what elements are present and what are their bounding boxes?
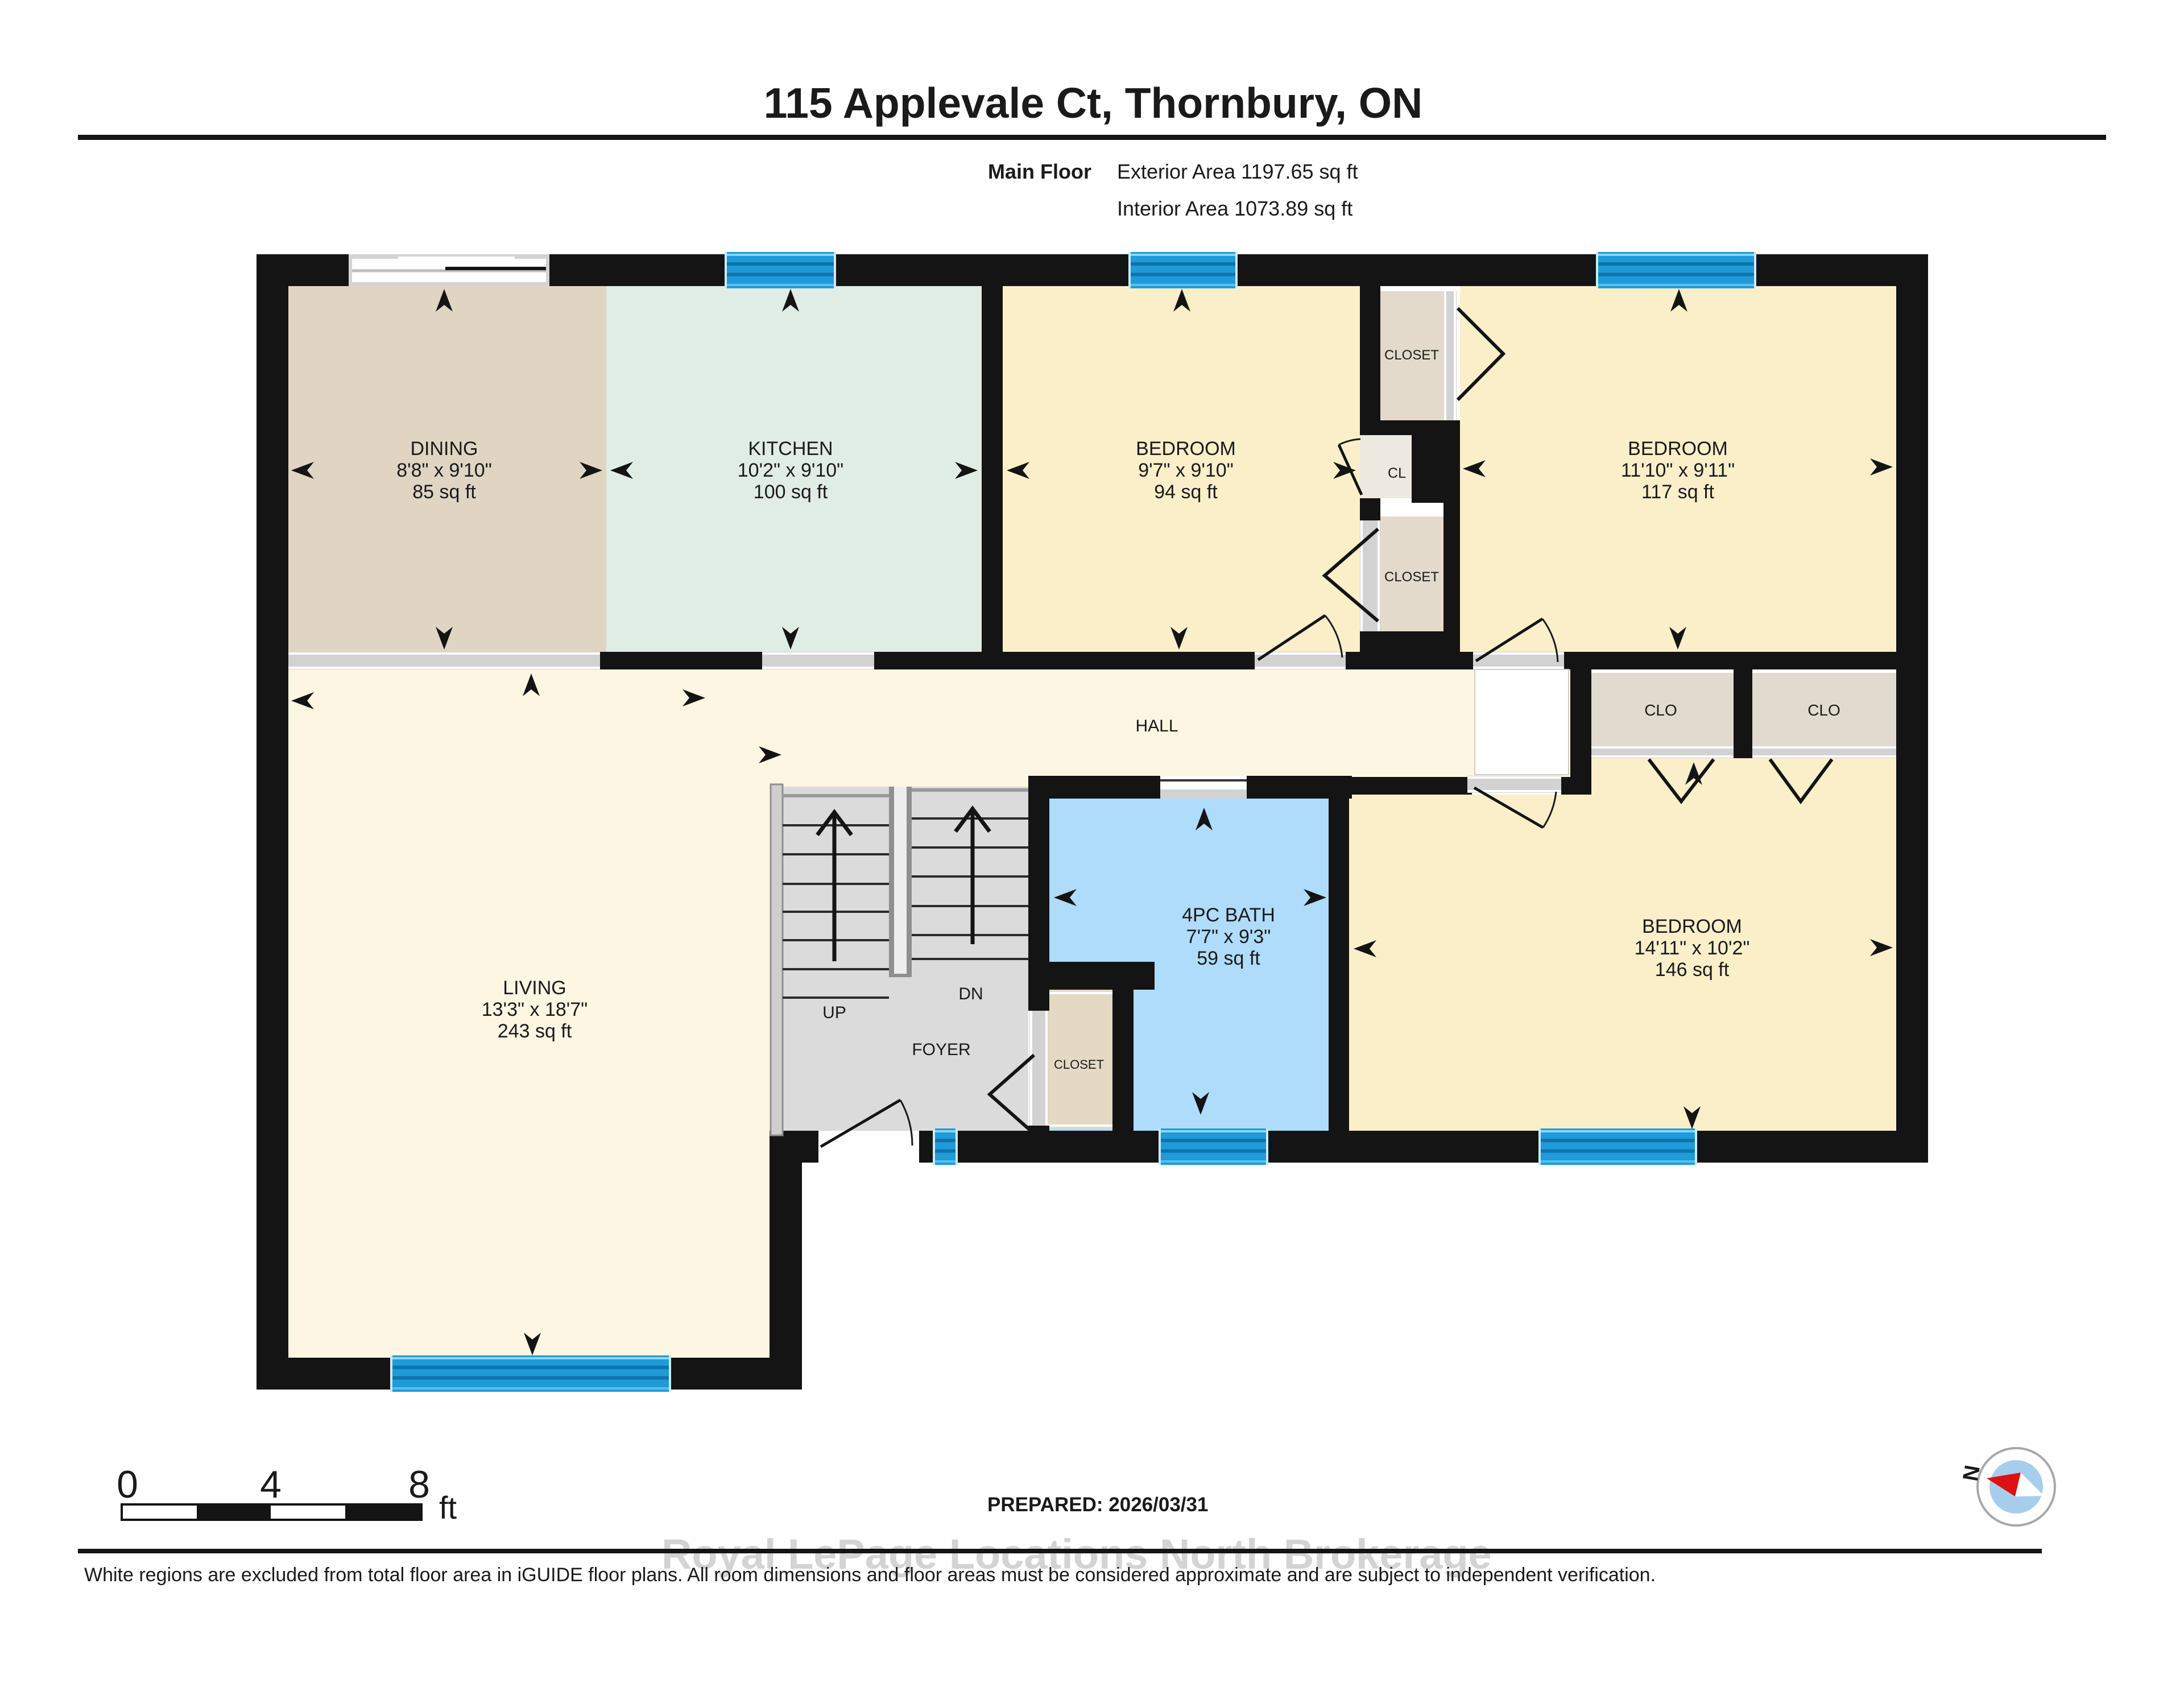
svg-text:BEDROOM: BEDROOM	[1628, 438, 1728, 460]
svg-text:115 Applevale Ct, Thornbury, O: 115 Applevale Ct, Thornbury, ON	[764, 79, 1423, 127]
svg-text:CLO: CLO	[1644, 701, 1677, 719]
svg-text:Main Floor: Main Floor	[988, 160, 1091, 183]
svg-text:White regions are excluded fro: White regions are excluded from total fl…	[84, 1564, 1656, 1586]
svg-text:146 sq ft: 146 sq ft	[1655, 959, 1730, 981]
svg-text:11'10" x 9'11": 11'10" x 9'11"	[1621, 460, 1735, 481]
svg-text:117 sq ft: 117 sq ft	[1641, 481, 1714, 503]
svg-text:Interior Area 1073.89 sq ft: Interior Area 1073.89 sq ft	[1117, 197, 1352, 220]
svg-text:243 sq ft: 243 sq ft	[498, 1020, 572, 1042]
svg-text:10'2" x 9'10": 10'2" x 9'10"	[738, 460, 843, 481]
svg-text:4PC BATH: 4PC BATH	[1182, 904, 1275, 926]
svg-text:13'3" x 18'7": 13'3" x 18'7"	[482, 999, 588, 1020]
svg-text:BEDROOM: BEDROOM	[1136, 438, 1236, 460]
svg-text:94 sq ft: 94 sq ft	[1154, 481, 1218, 503]
svg-text:LIVING: LIVING	[503, 977, 566, 999]
svg-text:7'7" x 9'3": 7'7" x 9'3"	[1186, 926, 1271, 948]
svg-text:KITCHEN: KITCHEN	[748, 438, 833, 460]
svg-text:UP: UP	[822, 1003, 846, 1022]
svg-text:DINING: DINING	[411, 438, 478, 460]
svg-text:CLOSET: CLOSET	[1384, 569, 1439, 585]
svg-text:CLO: CLO	[1807, 701, 1840, 719]
svg-text:9'7" x 9'10": 9'7" x 9'10"	[1138, 460, 1234, 481]
svg-text:0: 0	[117, 1463, 138, 1506]
svg-text:59 sq ft: 59 sq ft	[1197, 948, 1260, 969]
svg-text:CL: CL	[1388, 465, 1406, 481]
svg-text:DN: DN	[958, 985, 983, 1003]
svg-text:8'8" x 9'10": 8'8" x 9'10"	[396, 460, 492, 481]
svg-text:8: 8	[408, 1463, 430, 1506]
svg-text:4: 4	[260, 1463, 282, 1506]
svg-text:CLOSET: CLOSET	[1384, 348, 1439, 363]
svg-text:HALL: HALL	[1135, 717, 1178, 735]
svg-text:CLOSET: CLOSET	[1054, 1057, 1104, 1072]
svg-text:ft: ft	[439, 1490, 457, 1525]
svg-text:Exterior Area 1197.65 sq ft: Exterior Area 1197.65 sq ft	[1117, 160, 1358, 183]
svg-text:BEDROOM: BEDROOM	[1642, 916, 1742, 937]
svg-text:85 sq ft: 85 sq ft	[412, 481, 476, 503]
svg-text:PREPARED: 2026/03/31: PREPARED: 2026/03/31	[987, 1494, 1208, 1516]
svg-text:14'11" x 10'2": 14'11" x 10'2"	[1635, 937, 1750, 959]
svg-text:100 sq ft: 100 sq ft	[754, 481, 828, 503]
svg-text:FOYER: FOYER	[912, 1040, 970, 1059]
